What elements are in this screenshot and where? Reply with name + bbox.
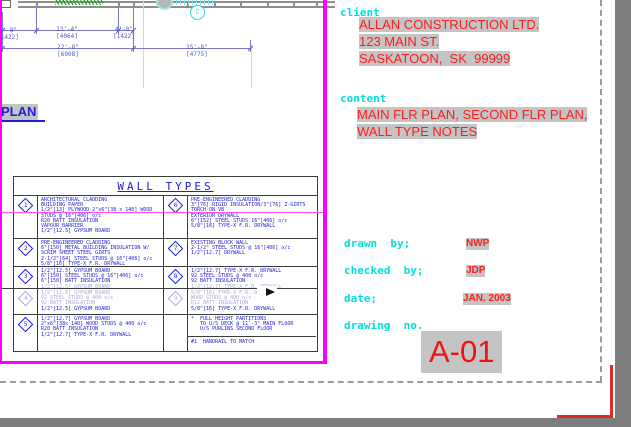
viewport-border-right[interactable] — [323, 0, 327, 364]
empty-marker-cell — [164, 315, 188, 351]
checked-by-field[interactable]: JDP — [466, 265, 485, 277]
wall-type-3-notes: 1/2"[12.5] GYPSUM BOARD6"[150] STEEL STU… — [38, 267, 164, 289]
wall-type-5-notes: 1/2"[12.7] GYPSUM BOARD2"x6"[38x 140] WO… — [38, 315, 164, 351]
dimension-text[interactable]: 15'-8"[4775] — [177, 32, 217, 71]
wall-type-marker-cell: 8 — [164, 267, 188, 289]
wall-type-marker-cell: 9 — [164, 289, 188, 315]
green-hatch — [55, 0, 103, 5]
wall-type-7-marker: 7 — [168, 241, 184, 257]
wall-type-8-notes: 1/2"[12.7] TYPE-X F.R. DRYWALL92 STEEL S… — [188, 267, 317, 289]
content-label: content — [340, 92, 386, 105]
wall-type-marker-cell: 3 — [14, 267, 38, 289]
viewport-border-left[interactable] — [0, 0, 2, 364]
wall-type-2-notes: PRE-ENGINEERED CLADDING6"[150] METAL BUI… — [38, 239, 164, 267]
arrowhead-icon — [266, 288, 275, 296]
date-field[interactable]: JAN. 2003 — [463, 293, 511, 305]
plan-title-underline — [0, 120, 45, 122]
wall-type-4-notes: 1/2"[12.5] GYPSUM BOARD92 STEEL STUDS @ … — [38, 289, 164, 315]
drawn-by-label: drawn by; — [344, 237, 410, 250]
date-label: date; — [344, 292, 377, 305]
wall-type-8-marker: 8 — [168, 269, 184, 285]
dimension-text[interactable]: 4'-8"[1422] — [0, 15, 23, 54]
wall-type-9-marker: 9 — [168, 291, 184, 307]
wall-types-table[interactable]: WALL TYPES 1 ARCHITECTURAL CLADDINGBUILD… — [13, 176, 318, 352]
printable-margin-right — [600, 0, 602, 382]
wall-types-title-row: WALL TYPES — [14, 177, 317, 196]
drawn-by-field[interactable]: NWP — [466, 238, 489, 250]
wall-mullion — [293, 1, 295, 8]
drawing-no-label: drawing no. — [344, 319, 423, 332]
content-line2-field[interactable]: WALL TYPE NOTES — [357, 124, 477, 139]
checked-by-label: checked by; — [344, 264, 423, 277]
grid-bubble-c: C — [190, 5, 205, 20]
wall-type-marker-cell: 6 — [164, 196, 188, 239]
leader-arrow-annotation — [257, 286, 277, 298]
client-address2-field[interactable]: SASKATOON, SK 99999 — [359, 51, 510, 66]
content-line1-field[interactable]: MAIN FLR PLAN, SECOND FLR PLAN, — [357, 107, 587, 122]
wall-type-7-notes: EXISTING BLOCK WALL2-1/2" STEEL STUDS @ … — [188, 239, 317, 267]
client-address1-field[interactable]: 123 MAIN ST. — [359, 34, 439, 49]
wall-mullion — [240, 1, 242, 8]
dimension-text[interactable]: 4'-8"[1422] — [104, 14, 144, 53]
viewport-edge-thin[interactable] — [0, 212, 323, 213]
wall-type-marker-cell: 2 — [14, 239, 38, 267]
wall-type-9-notes: 5/8"[16] TYPE-X F.R. DRYWALLWOOD STUDS @… — [188, 289, 317, 315]
wall-mullion — [36, 1, 38, 8]
wall-type-4-marker: 4 — [18, 291, 34, 307]
general-notes: * FULL HEIGHT PARTITIONS TO U/S DECK @ 1… — [188, 315, 317, 351]
wall-types-grid: 1 ARCHITECTURAL CLADDINGBUILDING PAPER1/… — [14, 196, 317, 351]
wall-type-1-notes: ARCHITECTURAL CLADDINGBUILDING PAPER1/2"… — [38, 196, 164, 239]
wall-mullion — [267, 1, 269, 8]
wall-type-6-notes: PRE-ENGINEERED CLADDING3"[76] RIGID INSU… — [188, 196, 317, 239]
wall-mullion — [316, 1, 318, 8]
sheet-border-bottom — [557, 415, 613, 418]
drawing-no-field[interactable]: A-01 — [421, 331, 502, 373]
client-name-field[interactable]: ALLAN CONSTRUCTION LTD. — [359, 17, 539, 32]
wall-type-marker-cell: 7 — [164, 239, 188, 267]
wall-type-3-marker: 3 — [18, 269, 34, 285]
wall-type-6-marker: 6 — [168, 198, 184, 214]
wall-mullion — [214, 1, 216, 8]
grid-line — [251, 44, 252, 88]
viewport-border-bottom[interactable] — [0, 361, 327, 364]
autocad-layout-view: C 4'-8"[1422] 13'-4"[4064] 4'-8"[1422] 2… — [0, 0, 631, 427]
wall-mullion — [133, 1, 135, 8]
sheet-border-right — [610, 365, 613, 418]
plan-title[interactable]: PLAN — [1, 104, 36, 120]
wall-type-marker-cell: 4 — [14, 289, 38, 315]
printable-margin-bottom — [0, 381, 602, 383]
dimension-text[interactable]: 22'-8"[6908] — [48, 32, 88, 71]
wall-type-2-marker: 2 — [18, 241, 34, 257]
wall-type-5-marker: 5 — [18, 317, 34, 333]
wall-mullion — [118, 1, 120, 8]
wall-type-marker-cell: 5 — [14, 315, 38, 351]
wall-type-1-marker: 1 — [18, 198, 34, 214]
wall-type-marker-cell: 1 — [14, 196, 38, 239]
wall-types-title: WALL TYPES — [117, 180, 213, 193]
